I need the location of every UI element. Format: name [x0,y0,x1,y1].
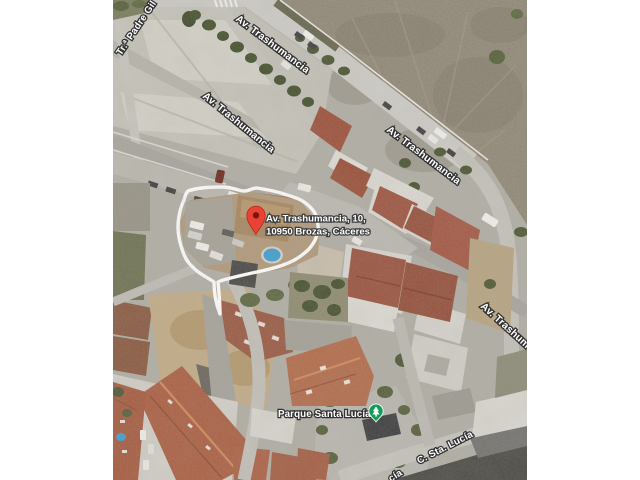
svg-text:Parque Santa Lucía: Parque Santa Lucía [278,409,371,420]
svg-text:Av. Trashumancia, 10,: Av. Trashumancia, 10, [266,214,366,225]
svg-text:10950 Brozas, Cáceres: 10950 Brozas, Cáceres [266,227,370,238]
